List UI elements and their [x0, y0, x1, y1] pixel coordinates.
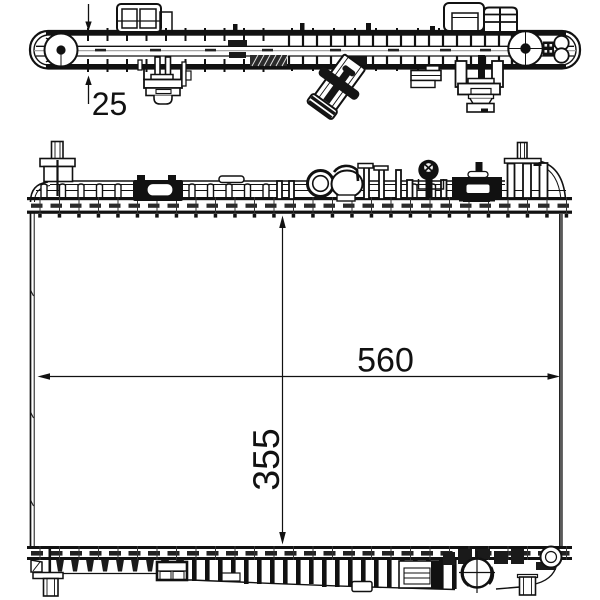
svg-text:560: 560	[357, 342, 414, 380]
svg-text:25: 25	[92, 86, 128, 122]
svg-text:355: 355	[245, 428, 287, 491]
